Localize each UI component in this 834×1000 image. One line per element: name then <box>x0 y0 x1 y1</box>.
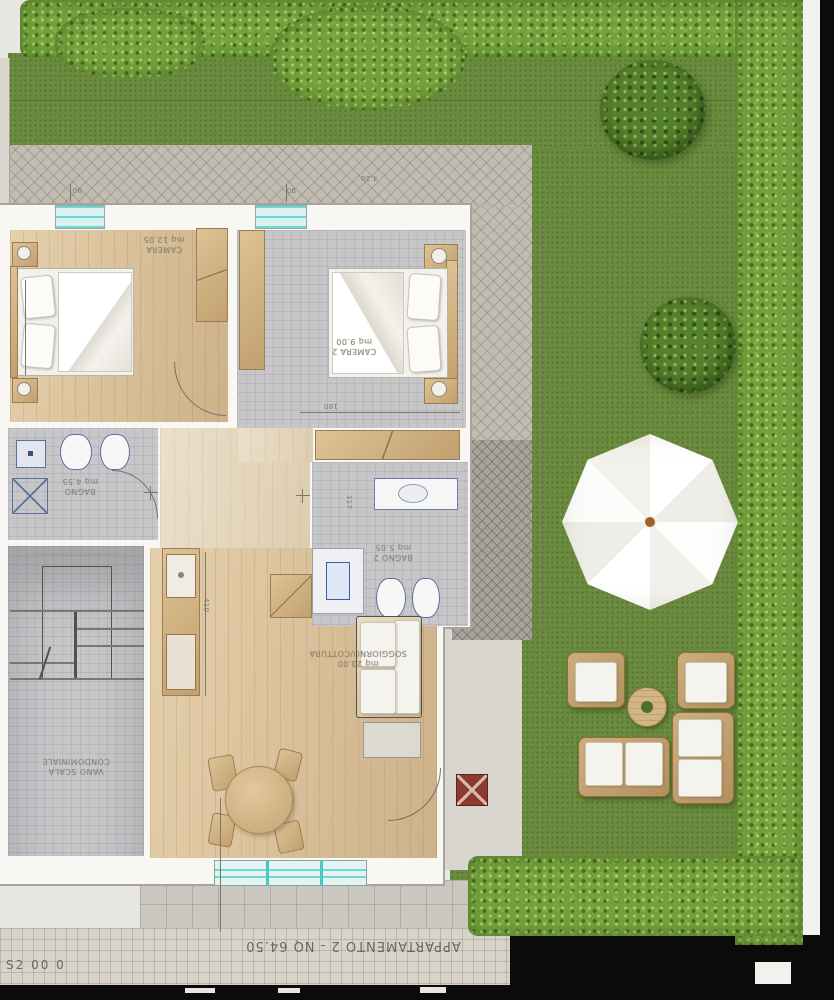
wardrobe-bedroom-1 <box>196 228 228 322</box>
sliding-door-mullion <box>266 860 269 886</box>
pillow <box>406 273 441 321</box>
room-name: SOGGIORNO/COTTURA <box>292 648 424 658</box>
dimension-text-tick: 90 <box>62 186 82 194</box>
room-area: mq 4.55 <box>56 476 104 486</box>
window-bedroom-2 <box>255 205 307 229</box>
room-name: CAMERA 2 <box>322 346 386 356</box>
room-name: VANO SCALA <box>32 766 120 776</box>
table-plant-icon <box>641 701 653 713</box>
sofa-seat <box>360 669 396 714</box>
lamp-icon <box>431 248 447 264</box>
duvet <box>58 272 132 372</box>
margin-mark <box>755 962 791 984</box>
site-plan-sheet: CAMERA mq 12.05 CAMERA 2 mq 9.00 BAGNO m… <box>0 0 834 1000</box>
dimension-tick <box>536 627 547 628</box>
pantry-closet <box>270 574 312 618</box>
tree-east <box>640 297 736 393</box>
hedge-bush-topleft <box>55 8 205 78</box>
sliding-glass-door <box>214 860 367 886</box>
garden-wall-stub <box>0 58 10 206</box>
paver-path-side <box>468 207 532 447</box>
bidet <box>100 434 130 470</box>
stair-step <box>10 678 144 680</box>
room-name: BAGNO <box>56 486 104 496</box>
dimension-text-tick: 90 <box>276 186 296 194</box>
wall-edge-right2 <box>443 628 445 886</box>
margin-mark <box>278 988 300 993</box>
basin-bowl <box>398 484 428 503</box>
room-area: mq 5.05 <box>368 542 418 552</box>
sheet-scale-note: S2 00 0 <box>6 958 106 972</box>
margin-mark <box>420 987 446 993</box>
dimension-text-path: 4.20 <box>346 174 392 182</box>
cooktop <box>166 634 196 690</box>
wardrobe-bedroom-2-left <box>239 230 265 370</box>
corridor-floor-2 <box>237 428 313 462</box>
dining-table <box>225 766 293 834</box>
dimension-text-kitchen: 410 <box>202 598 210 626</box>
dimension-text-corridor: 117 <box>345 495 353 521</box>
room-area: mq 9.00 <box>322 336 386 346</box>
duvet <box>332 272 404 374</box>
cross-tick <box>150 486 151 500</box>
faucet-icon <box>178 572 184 578</box>
sofa-cushion <box>678 759 722 797</box>
room-label-bedroom-1: CAMERA mq 12.05 <box>128 234 200 254</box>
dimension-line <box>220 798 221 932</box>
dimension-line <box>300 412 460 413</box>
armchair-cushion <box>575 662 617 702</box>
wardrobe-bedroom-2 <box>315 430 460 460</box>
room-label-stairs: VANO SCALA CONDOMINIALE <box>32 756 120 776</box>
hedge-bush-topcenter <box>270 5 465 110</box>
wall-edge-right <box>470 203 472 629</box>
cross-tick <box>144 492 158 493</box>
grid-paper-strip <box>0 928 510 985</box>
sofa-cushion <box>625 742 663 786</box>
wall-edge-step <box>443 627 472 629</box>
cross-tick <box>302 489 303 503</box>
hedge-bottom <box>468 856 802 936</box>
terrace-paving <box>140 880 522 935</box>
room-label-living: mq 23.00 SOGGIORNO/COTTURA <box>292 648 424 668</box>
dimension-tick <box>536 230 547 231</box>
tv-cabinet <box>363 722 421 758</box>
bed-headboard <box>10 266 18 378</box>
room-name: BAGNO 2 <box>368 552 418 562</box>
cross-tick <box>296 495 310 496</box>
lamp-icon <box>17 382 31 396</box>
room-label-bathroom-2: BAGNO 2 mq 5.05 <box>368 542 418 562</box>
window-bedroom-1 <box>55 205 105 229</box>
margin-mark <box>185 988 215 993</box>
toilet <box>376 578 406 618</box>
stair-step <box>10 662 74 664</box>
stair-step <box>77 645 144 647</box>
stair-step <box>10 610 144 612</box>
dimension-line <box>25 280 26 375</box>
tree-northeast <box>600 60 705 160</box>
armchair-cushion <box>685 662 727 703</box>
patio-east <box>437 618 522 870</box>
toilet <box>60 434 92 470</box>
shower-drain-icon <box>28 451 33 456</box>
room-label-bedroom-2: CAMERA 2 mq 9.00 <box>322 336 386 356</box>
lamp-icon <box>17 246 31 260</box>
washing-area-box <box>12 478 48 514</box>
umbrella-pole-icon <box>643 515 657 529</box>
room-name: CAMERA <box>128 244 200 254</box>
stair-step <box>77 628 144 630</box>
shower-glass <box>326 562 350 600</box>
sheet-margin-right <box>820 0 834 1000</box>
sheet-title: APPARTAMENTO 2 - NQ 64.50 <box>222 938 484 953</box>
sliding-door-mullion <box>320 860 323 886</box>
bidet <box>412 578 440 618</box>
paver-path-top <box>8 145 532 207</box>
sofa-cushion <box>585 742 623 786</box>
room-area: mq 23.00 <box>292 658 424 668</box>
dimension-text-bed2: 180 <box>312 402 338 410</box>
sofa-cushion <box>678 719 722 757</box>
lamp-icon <box>431 381 447 397</box>
room-label-bathroom-1: BAGNO mq 4.55 <box>56 476 104 496</box>
grill <box>456 774 488 806</box>
room-area: CONDOMINIALE <box>32 756 120 766</box>
hedge-right <box>735 0 803 945</box>
dimension-line <box>541 230 542 628</box>
pillow <box>406 325 441 373</box>
room-area: mq 12.05 <box>128 234 200 244</box>
